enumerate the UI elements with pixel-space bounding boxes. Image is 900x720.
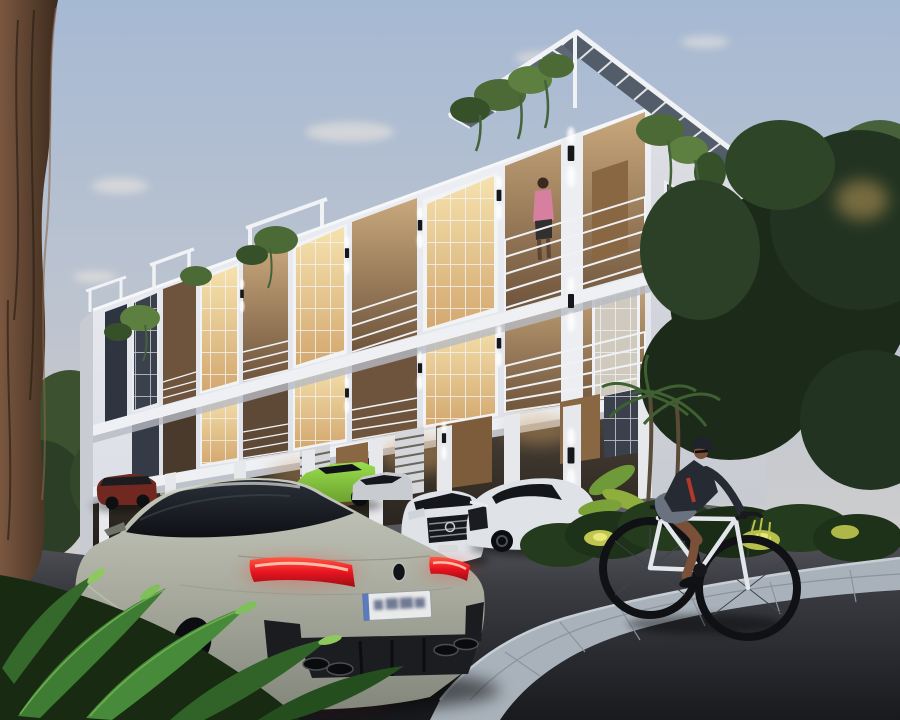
sconce: [240, 279, 245, 312]
plate-glyph: [400, 597, 414, 609]
tree-canopy: [640, 300, 820, 460]
sconce: [496, 325, 502, 366]
sconce: [417, 207, 423, 248]
tree-canopy: [725, 120, 835, 210]
bmw-roundel: [393, 563, 406, 581]
exhaust-tip: [454, 639, 478, 650]
plate-glyph: [415, 598, 426, 609]
rider-sunglasses: [695, 451, 708, 452]
exhaust-tip: [327, 663, 353, 675]
sconce: [567, 277, 575, 332]
sconce: [567, 127, 576, 187]
vine-cluster: [538, 54, 574, 78]
exhaust-tip: [303, 658, 329, 670]
vine-cluster: [450, 97, 490, 123]
front-plate: [438, 545, 458, 552]
vine-cluster: [104, 323, 132, 341]
window-bay: [423, 172, 498, 332]
shrub: [813, 514, 900, 562]
person-head: [538, 178, 549, 189]
window-bay: [293, 224, 347, 369]
sconce: [344, 236, 350, 274]
sunset-glow-through-leaves: [836, 180, 888, 220]
tree-canopy: [640, 180, 760, 320]
license-plate: [362, 590, 431, 621]
plate-glyph: [386, 598, 399, 610]
uplight-glow: [831, 525, 859, 539]
uplight-core: [593, 533, 607, 541]
sconce: [441, 421, 447, 460]
rendered-scene: [0, 0, 900, 720]
window-grid: [296, 227, 344, 365]
sconce: [496, 176, 502, 220]
cloud: [306, 122, 394, 142]
sconce: [344, 377, 349, 413]
coupe-wheel: [491, 530, 513, 552]
suv-wheel: [106, 497, 119, 510]
balcony-recess: [243, 245, 288, 382]
coupe-grille: [468, 506, 488, 531]
vine-cluster: [236, 245, 268, 265]
vine-cluster: [180, 266, 212, 286]
person-shirt: [533, 189, 554, 222]
scene-canvas: [0, 0, 900, 720]
building-end-cap: [80, 310, 93, 558]
rider-hand: [740, 511, 748, 519]
window-grid: [202, 266, 237, 391]
plate-glyph: [374, 600, 384, 610]
cloud: [92, 178, 148, 194]
sconce: [417, 351, 423, 390]
cloud: [681, 36, 729, 48]
